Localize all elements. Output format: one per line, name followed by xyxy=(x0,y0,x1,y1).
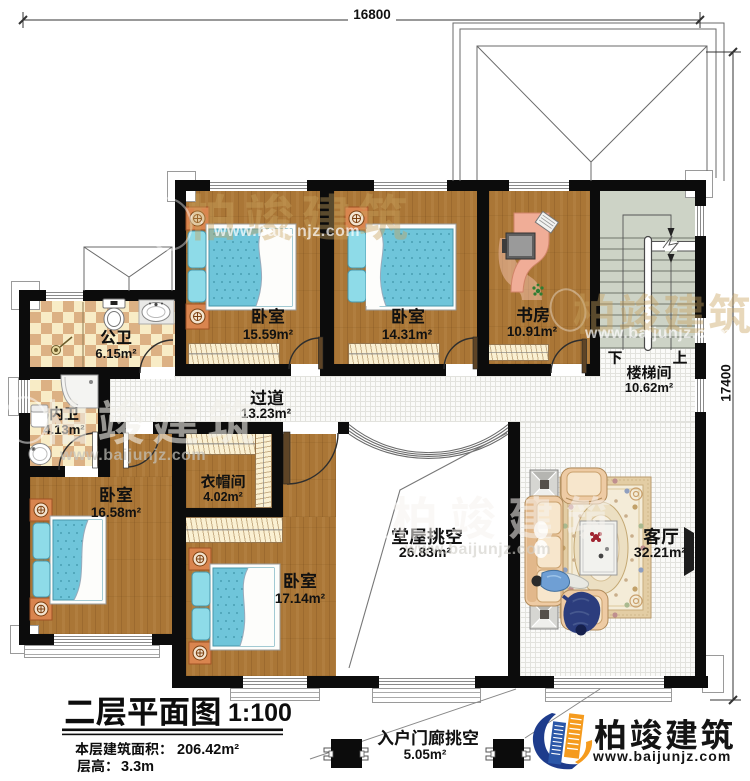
svg-text:15.59m²: 15.59m² xyxy=(243,327,294,342)
svg-text:3.3m: 3.3m xyxy=(121,759,154,775)
svg-text:1:100: 1:100 xyxy=(228,699,292,727)
svg-text:www.baijunjz.com: www.baijunjz.com xyxy=(59,447,206,464)
svg-text:10.62m²: 10.62m² xyxy=(625,380,674,395)
svg-text:17400: 17400 xyxy=(719,364,734,402)
svg-text:17.14m²: 17.14m² xyxy=(275,591,326,606)
svg-text:10.91m²: 10.91m² xyxy=(507,324,558,339)
svg-text:16800: 16800 xyxy=(353,7,391,22)
svg-text:www.baijunjz.com: www.baijunjz.com xyxy=(213,223,360,240)
svg-text:14.31m²: 14.31m² xyxy=(382,327,433,342)
svg-text:206.42m²: 206.42m² xyxy=(177,742,239,758)
svg-text:5.05m²: 5.05m² xyxy=(404,747,447,762)
svg-text:32.21m²: 32.21m² xyxy=(634,544,686,560)
svg-text:4.02m²: 4.02m² xyxy=(203,490,243,504)
svg-text:www.baijunjz.com: www.baijunjz.com xyxy=(584,325,731,342)
svg-text:www.baijunjz.com: www.baijunjz.com xyxy=(404,541,551,558)
svg-text:www.baijunjz.com: www.baijunjz.com xyxy=(592,748,731,764)
svg-text:16.58m²: 16.58m² xyxy=(91,505,142,520)
svg-text:6.15m²: 6.15m² xyxy=(95,346,137,361)
